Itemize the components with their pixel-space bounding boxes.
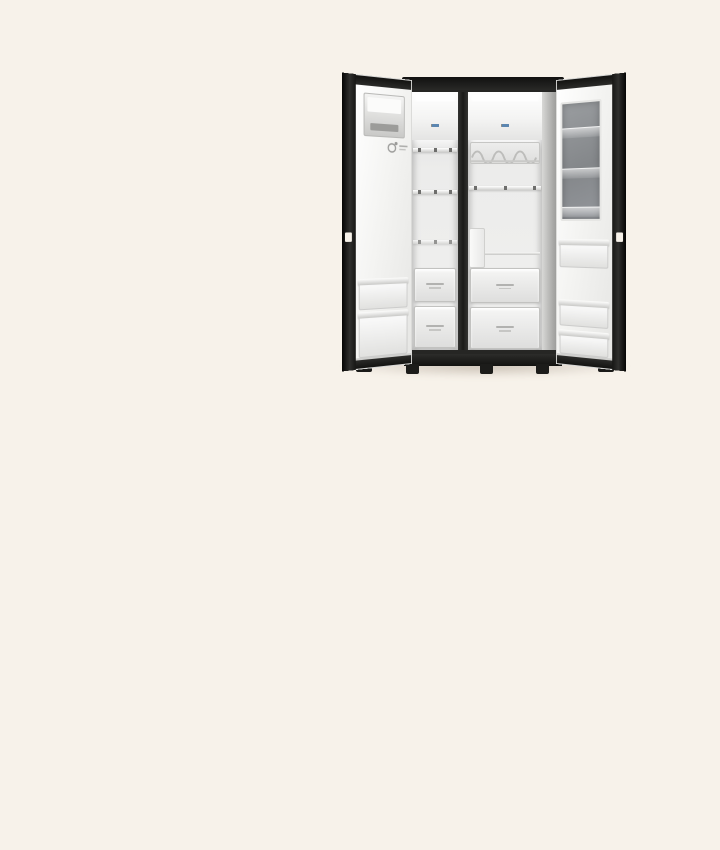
leveling-foot — [406, 364, 419, 374]
leveling-foot — [480, 364, 493, 374]
ice-maker-box — [364, 92, 405, 138]
freezer-drawer — [414, 268, 456, 302]
wine-rack-wave — [471, 143, 539, 163]
door-top-cap — [557, 75, 612, 90]
cabinet-interior — [404, 90, 562, 354]
refrigerator — [340, 70, 630, 390]
center-divider — [458, 92, 468, 350]
door-edge — [342, 73, 356, 372]
door-bin-front — [359, 315, 408, 358]
fridge-drawer — [470, 307, 540, 349]
freezer-shelf — [413, 240, 457, 244]
door-edge — [612, 73, 626, 372]
freezer-door — [342, 73, 412, 372]
fridge-door-liner — [556, 74, 613, 370]
door-bin-front — [359, 283, 408, 310]
craft-ice-badge-icon — [386, 139, 408, 154]
brand-label-mark — [412, 124, 458, 127]
door-bin-front — [560, 305, 609, 329]
backdrop — [0, 0, 720, 850]
label-blue-segment — [432, 124, 439, 127]
hinge-notch — [616, 232, 623, 242]
ice-box-lid — [367, 97, 401, 114]
leveling-foot — [536, 364, 549, 374]
hinge-notch — [345, 232, 352, 242]
drawer-label-mark — [496, 326, 514, 328]
glass-shelf-bin — [562, 126, 599, 139]
freezer-shelf — [413, 190, 457, 194]
label-blue-segment — [502, 124, 509, 127]
interior-filter-box — [469, 228, 485, 268]
shelf-items — [476, 180, 534, 185]
freezer-light-panel — [412, 92, 458, 140]
freezer-compartment — [412, 92, 458, 350]
fridge-compartment — [468, 92, 542, 350]
freezer-door-liner — [355, 74, 412, 370]
fridge-shelf — [469, 186, 541, 190]
fridge-door — [556, 73, 626, 372]
drawer-label-mark — [426, 325, 444, 327]
glass-shelf-bin — [562, 167, 599, 179]
freezer-shelf — [413, 148, 457, 152]
glass-shelf-bin — [562, 207, 599, 217]
led-light-bar — [471, 95, 539, 101]
drawer-label-mark — [496, 284, 514, 286]
drawer-label-mark — [426, 283, 444, 285]
instaview-glass-panel — [561, 99, 602, 221]
brand-label-mark — [468, 124, 542, 127]
ice-dispenser-slot — [370, 123, 398, 132]
led-light-bar — [415, 95, 455, 101]
freezer-drawer — [414, 306, 456, 348]
door-bin-front — [560, 245, 609, 269]
wine-rack-shelf — [470, 142, 540, 164]
fridge-drawer — [470, 268, 540, 303]
fridge-light-panel — [468, 92, 542, 140]
